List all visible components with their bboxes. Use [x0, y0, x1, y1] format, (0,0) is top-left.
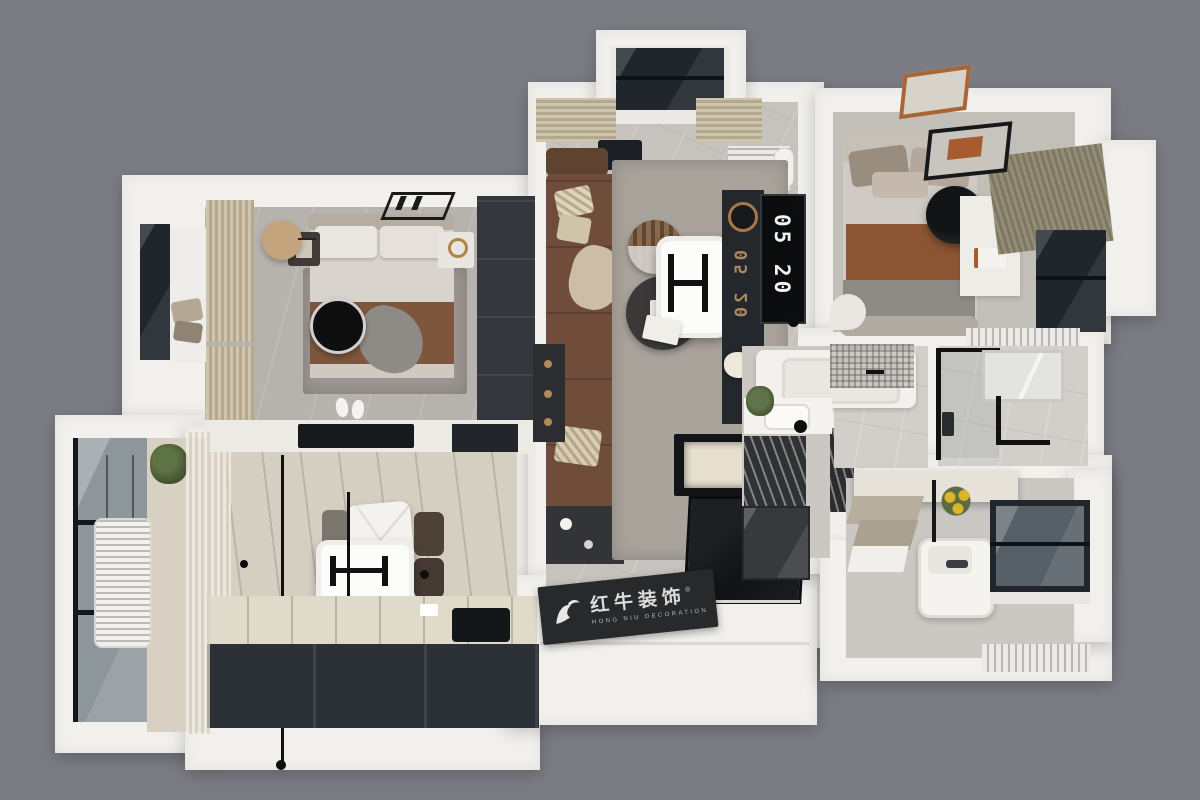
tub-faucet: [866, 370, 884, 374]
master-pillow-right: [380, 226, 444, 258]
dining-chair-brown: [414, 558, 444, 598]
master-pillow-left: [315, 226, 377, 258]
shower-bottle: [942, 412, 954, 436]
kitchen-base-cabinets: [205, 644, 539, 728]
bath-window-sill: [990, 592, 1090, 604]
ceiling-spot: [240, 560, 248, 568]
shower-mirror: [982, 350, 1064, 402]
drying-rack: [94, 518, 152, 648]
window-flowers-yellow: [938, 484, 978, 522]
bath-window-mullion: [990, 542, 1090, 546]
bay-pillow: [173, 320, 204, 344]
balcony-window-frame: [616, 76, 724, 80]
bull-icon: [547, 595, 584, 632]
hook-knob: [544, 390, 552, 398]
balcony-plant: [150, 444, 188, 484]
bath-step-platform: [847, 546, 909, 572]
pendant-disc-lamp: [262, 220, 302, 260]
shower-fixture-arm: [996, 440, 1050, 445]
sofa-armrest: [546, 148, 608, 176]
sofa-pillow: [556, 213, 592, 244]
master-wardrobe: [477, 196, 535, 432]
pendant-bulb: [276, 760, 286, 770]
ceiling-light-mark: [382, 556, 388, 586]
master-round-stool: [310, 298, 366, 354]
apartment-floorplan-render: 05 20 05 20 红牛装饰® HONG NIU DECORATION: [0, 0, 1200, 800]
desk-appliance-dark: [452, 424, 518, 452]
wall-art-orange-inset: [947, 136, 983, 160]
master-curtain-upper: [206, 200, 254, 342]
coffee-cup: [584, 540, 593, 549]
hook-knob: [544, 418, 552, 426]
coffee-cup: [560, 518, 572, 530]
bath-window-glass: [996, 506, 1084, 586]
laundry-cabinet-glass: [742, 506, 810, 580]
vanity-plant: [746, 386, 774, 416]
bed2-window: [1036, 230, 1106, 332]
laundry-window-frame: [73, 438, 78, 722]
bath-mesh-screen: [830, 344, 914, 388]
drying-rack-cable: [132, 455, 134, 521]
bathroom-ac-vent: [982, 644, 1090, 672]
living-curtain-right: [696, 98, 762, 142]
bed2-chair: [830, 294, 866, 330]
toilet-slot: [946, 560, 968, 568]
registered-mark: ®: [685, 586, 691, 594]
dining-chair-brown: [414, 512, 444, 556]
drying-rack-cable: [106, 455, 108, 521]
console-decor-ring: [728, 202, 758, 232]
bed2-window-frame: [1036, 276, 1106, 280]
bed2-pillow-small: [872, 172, 928, 198]
tv-flip-clock: 05 20: [770, 214, 794, 297]
laundry-sheer-curtain: [186, 432, 210, 734]
ceiling-light-mark: [672, 280, 706, 286]
ceiling-spot: [420, 570, 429, 579]
hook-knob: [544, 360, 552, 368]
living-curtain-left: [536, 98, 616, 142]
step-edge: [540, 642, 810, 645]
brand-text-block: 红牛装饰® HONG NIU DECORATION: [589, 584, 708, 625]
ceiling-light-mark: [336, 568, 382, 573]
shower-fixture-bar: [996, 396, 1001, 444]
pendant-lamp-arm: [298, 238, 316, 240]
tv-reflection-digits: 05 20: [732, 250, 752, 321]
wall-spotlight: [788, 200, 799, 211]
wall-spotlight: [788, 316, 799, 327]
desk-black-panel: [298, 424, 414, 448]
vanity-spotlight: [794, 420, 807, 433]
kitchen-cooktop: [452, 608, 510, 642]
bay-window-glass: [140, 224, 170, 360]
nightstand-lamp-gold: [448, 238, 468, 258]
bath-glass-frame: [932, 480, 936, 542]
kitchen-small-item: [420, 604, 438, 616]
